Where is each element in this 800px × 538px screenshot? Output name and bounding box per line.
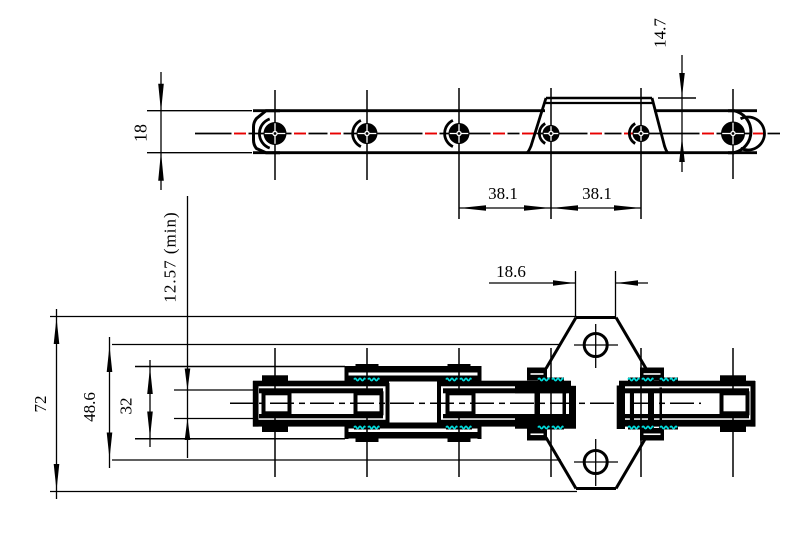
svg-text:38.1: 38.1 [488, 184, 518, 203]
svg-text:18: 18 [131, 124, 151, 142]
svg-text:38.1: 38.1 [582, 184, 612, 203]
svg-text:32: 32 [117, 398, 136, 415]
svg-text:14.7: 14.7 [651, 18, 670, 48]
svg-text:12.57 (min): 12.57 (min) [161, 211, 180, 302]
svg-text:48.6: 48.6 [80, 392, 99, 422]
svg-text:72: 72 [31, 396, 50, 413]
svg-text:18.6: 18.6 [496, 262, 526, 281]
